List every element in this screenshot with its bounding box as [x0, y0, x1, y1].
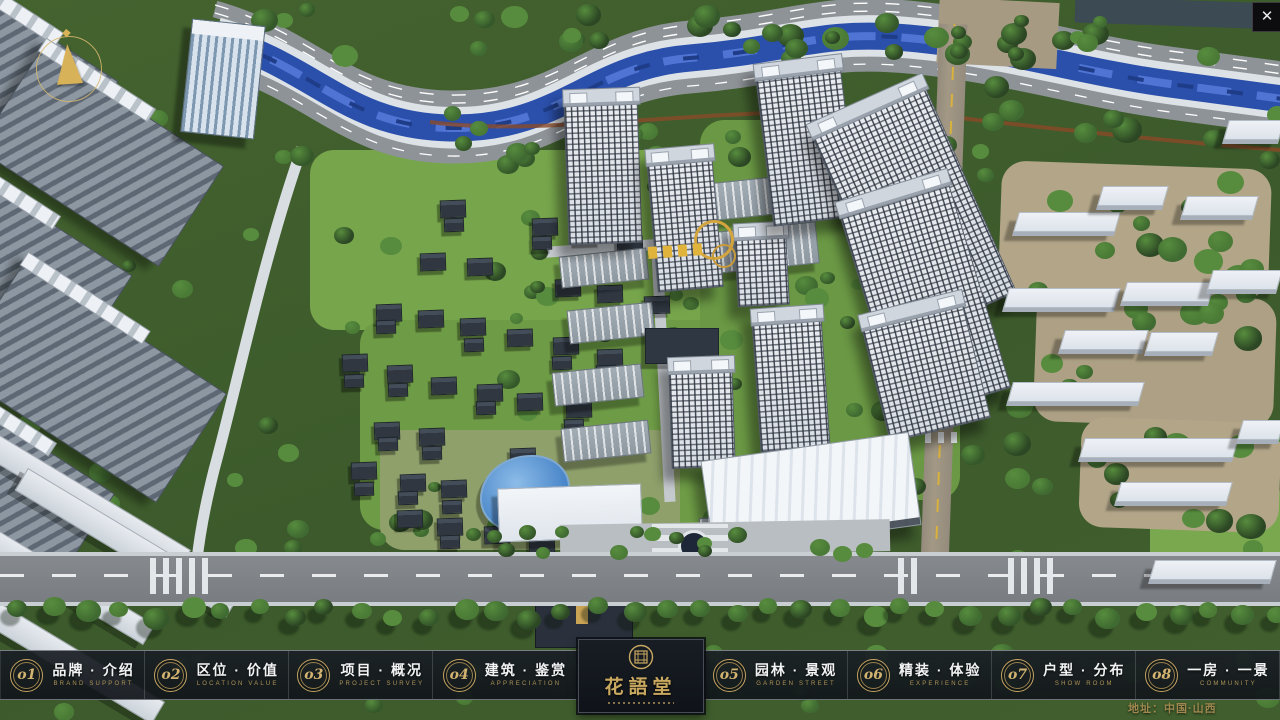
courtyard-house	[430, 376, 457, 395]
tree	[455, 136, 472, 150]
tree	[1041, 354, 1063, 373]
tree	[1199, 602, 1218, 618]
courtyard-house	[476, 401, 496, 416]
tree	[182, 597, 206, 618]
courtyard-house	[532, 236, 552, 251]
nav-label: 项目 · 概况	[341, 663, 423, 677]
courtyard-house	[397, 510, 424, 529]
building	[1079, 438, 1239, 458]
tree	[352, 603, 372, 620]
building	[1181, 196, 1259, 216]
tree	[76, 600, 101, 621]
garden-ring	[712, 244, 736, 268]
residential-tower	[751, 316, 830, 453]
close-button[interactable]: ✕	[1252, 2, 1280, 32]
tree	[984, 76, 1010, 98]
tree	[470, 41, 487, 56]
tree	[227, 473, 243, 487]
courtyard-house	[351, 462, 378, 481]
tree	[645, 527, 661, 540]
nav-sublabel: LOCATION VALUE	[197, 681, 279, 687]
item-number-badge: o8	[1145, 659, 1178, 692]
tree	[428, 482, 440, 492]
courtyard-house	[507, 329, 534, 348]
residential-tower	[668, 367, 735, 469]
courtyard-house	[422, 446, 442, 461]
tree	[728, 147, 752, 167]
building	[1223, 120, 1280, 140]
tree	[487, 530, 502, 543]
tree	[498, 543, 515, 558]
sales-kiosk-screen: ✕ o1 品牌 · 介绍 BRAND SUPPORT o2 区位 · 价值 LO…	[0, 0, 1280, 720]
nav-item-07-floorplan[interactable]: o7 户型 · 分布 SHOW ROOM	[992, 651, 1136, 699]
tree	[576, 4, 601, 26]
tree	[1267, 607, 1280, 623]
courtyard-house	[398, 491, 418, 506]
tree	[510, 313, 523, 324]
tree	[864, 606, 888, 626]
tree	[890, 598, 909, 614]
item-number-badge: o6	[857, 659, 890, 692]
nav-item-04-architecture[interactable]: o4 建筑 · 鉴赏 APPRECIATION	[433, 651, 577, 699]
tree	[825, 31, 841, 44]
courtyard-house	[436, 517, 463, 536]
residential-tower	[734, 233, 790, 308]
tree	[517, 610, 541, 631]
tree	[450, 6, 469, 22]
tree	[639, 497, 660, 515]
nav-label: 户型 · 分布	[1043, 663, 1125, 677]
courtyard-house	[531, 217, 558, 236]
courtyard-house	[464, 338, 484, 353]
tree	[630, 526, 644, 538]
courtyard-house	[344, 374, 364, 389]
tree	[1158, 237, 1187, 262]
tree	[380, 237, 402, 256]
tree	[524, 142, 540, 155]
tree	[790, 600, 812, 619]
tree	[785, 39, 808, 59]
tree	[143, 608, 169, 630]
building	[1149, 560, 1277, 580]
tree	[419, 609, 439, 626]
tree	[1047, 190, 1073, 212]
courtyard-house	[460, 318, 487, 337]
item-number-badge: o3	[297, 659, 330, 692]
courtyard-house	[596, 285, 623, 304]
tree	[820, 272, 834, 284]
tree	[972, 144, 989, 158]
tree	[1032, 478, 1053, 496]
tree	[885, 44, 904, 60]
tree	[530, 281, 545, 294]
nav-sublabel: APPRECIATION	[491, 681, 562, 687]
tree	[951, 26, 966, 39]
tree	[1206, 509, 1234, 533]
courtyard-house	[387, 364, 414, 383]
tree	[728, 605, 748, 622]
tree	[589, 32, 609, 49]
courtyard-house	[378, 437, 398, 452]
courtyard-house	[552, 356, 572, 371]
courtyard-house	[440, 200, 467, 219]
compass-needle-icon	[54, 43, 83, 85]
nav-sublabel: COMMUNITY	[1200, 681, 1257, 687]
courtyard-house	[440, 535, 460, 550]
courtyard-house	[442, 500, 462, 515]
nav-item-06-interior[interactable]: o6 精装 · 体验 EXPERIENCE	[848, 651, 992, 699]
tree	[474, 11, 494, 28]
tree	[694, 5, 721, 28]
crosswalk	[898, 558, 924, 594]
nav-item-08-views[interactable]: o8 一房 · 一景 COMMUNITY	[1136, 651, 1280, 699]
nav-sublabel: GARDEN STREET	[756, 681, 836, 687]
logo-caption-rule	[608, 702, 674, 704]
tree	[563, 28, 581, 43]
tree	[109, 602, 127, 618]
courtyard-house	[376, 320, 396, 335]
nav-label: 一房 · 一景	[1187, 663, 1269, 677]
tree	[551, 604, 569, 620]
tree	[998, 606, 1021, 626]
item-number-badge: o5	[713, 659, 746, 692]
courtyard-house	[476, 383, 503, 402]
tree	[588, 597, 608, 614]
item-number-badge: o2	[154, 659, 187, 692]
tree	[383, 610, 402, 626]
tree	[334, 227, 354, 244]
tree	[43, 597, 66, 617]
tree	[698, 545, 712, 557]
tree	[455, 599, 480, 620]
courtyard-house	[388, 383, 408, 398]
tree	[285, 609, 305, 626]
tree	[536, 547, 551, 559]
tree	[1093, 16, 1107, 28]
courtyard-house	[354, 482, 374, 497]
building	[1145, 332, 1219, 352]
tree	[290, 146, 313, 166]
tree	[720, 330, 743, 350]
crosswalk	[1008, 558, 1056, 594]
nav-label: 建筑 · 鉴赏	[485, 663, 567, 677]
tree	[1234, 326, 1263, 350]
tree	[466, 528, 481, 541]
building	[1121, 282, 1215, 302]
tree	[519, 525, 536, 540]
building	[1115, 482, 1233, 502]
crosswalk	[925, 432, 963, 443]
seal-emblem-icon	[628, 644, 654, 670]
tree	[690, 600, 710, 617]
building	[1207, 270, 1280, 290]
building	[180, 18, 266, 139]
tree	[287, 520, 309, 538]
building	[1007, 382, 1145, 402]
masterplan-render	[0, 0, 1280, 720]
project-logo: 花語堂	[578, 639, 704, 713]
nav-sublabel: SHOW ROOM	[1055, 681, 1114, 687]
tree	[1208, 231, 1233, 252]
tree	[1074, 123, 1098, 143]
crosswalk	[150, 558, 208, 594]
courtyard-house	[419, 252, 446, 271]
tree	[1231, 605, 1254, 625]
building	[1013, 212, 1121, 232]
item-number-badge: o7	[1001, 659, 1034, 692]
nav-label: 品牌 · 介绍	[52, 663, 134, 677]
nav-item-03-project[interactable]: o3 项目 · 概况 PROJECT SURVEY	[289, 651, 433, 699]
building	[1003, 288, 1121, 308]
nav-sublabel: BRAND SUPPORT	[53, 681, 133, 687]
tree	[370, 532, 386, 546]
tree	[501, 6, 528, 29]
nav-sublabel: PROJECT SURVEY	[339, 681, 424, 687]
courtyard-house	[341, 354, 368, 373]
nav-item-01-brand[interactable]: o1 品牌 · 介绍 BRAND SUPPORT	[0, 651, 145, 699]
bottom-navbar: o1 品牌 · 介绍 BRAND SUPPORT o2 区位 · 价值 LOCA…	[0, 650, 1280, 700]
nav-label: 区位 · 价值	[196, 663, 278, 677]
tree	[925, 601, 944, 617]
nav-sublabel: EXPERIENCE	[910, 681, 971, 687]
courtyard-house	[444, 218, 464, 233]
tree	[846, 403, 862, 417]
tree	[1203, 130, 1225, 149]
tree	[7, 600, 27, 617]
tree	[1095, 242, 1115, 259]
building	[1059, 330, 1149, 350]
tree	[810, 539, 830, 556]
internal-road	[197, 148, 302, 560]
tree	[759, 598, 777, 614]
project-address: 地址：中国·山西	[1128, 700, 1217, 716]
tree	[275, 150, 291, 164]
residential-tower	[564, 99, 643, 245]
courtyard-house	[440, 480, 467, 499]
tree	[299, 3, 315, 17]
tree	[1005, 468, 1030, 489]
tree	[1197, 47, 1220, 66]
tree	[725, 130, 741, 144]
tree	[830, 599, 851, 617]
gate-sign	[576, 606, 588, 624]
courtyard-house	[418, 309, 445, 328]
building	[1237, 420, 1280, 440]
tree	[723, 22, 740, 37]
courtyard-house	[418, 427, 445, 446]
tree	[345, 321, 360, 334]
building	[1097, 186, 1169, 206]
tree	[762, 24, 783, 42]
logo-title: 花語堂	[604, 672, 676, 699]
tree	[1014, 15, 1029, 28]
tree	[1182, 509, 1204, 528]
item-number-badge: o4	[443, 659, 476, 692]
nav-item-02-location[interactable]: o2 区位 · 价值 LOCATION VALUE	[145, 651, 289, 699]
tree	[243, 228, 258, 241]
nav-label: 精装 · 体验	[899, 663, 981, 677]
tree	[278, 444, 299, 462]
courtyard-house	[467, 257, 494, 276]
tree	[1076, 365, 1092, 379]
tree	[728, 527, 747, 543]
tree	[1236, 514, 1266, 539]
tree	[1077, 34, 1098, 51]
item-number-badge: o1	[10, 659, 43, 692]
nav-item-05-garden[interactable]: o5 园林 · 景观 GARDEN STREET	[704, 651, 848, 699]
tree	[624, 602, 647, 621]
tree	[959, 606, 982, 626]
tree	[833, 546, 852, 562]
courtyard-house	[517, 393, 544, 412]
tree	[54, 703, 74, 720]
courtyard-house	[399, 474, 426, 493]
nav-label: 园林 · 景观	[755, 663, 837, 677]
tree	[1199, 303, 1224, 324]
